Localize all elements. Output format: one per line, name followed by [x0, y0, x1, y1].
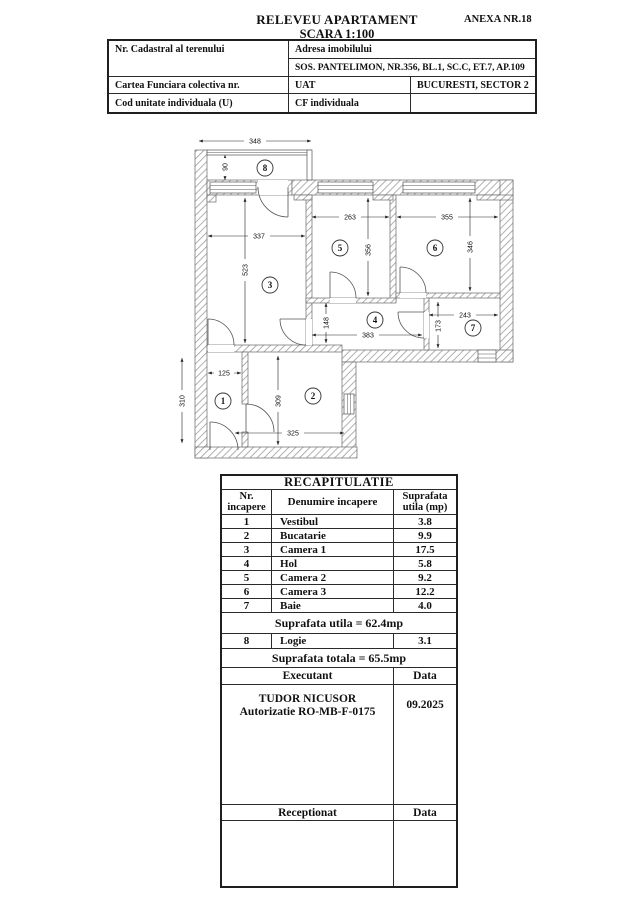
row-name: Camera 2: [272, 571, 394, 585]
room-number-3: 3: [268, 280, 273, 290]
row-nr: 6: [222, 585, 272, 599]
room-number-8: 8: [263, 163, 268, 173]
unit-code-label-cell: Cod unitate individuala (U): [109, 94, 289, 112]
dim-label: 310: [180, 395, 187, 407]
row-name: Baie: [272, 599, 394, 613]
col-header-area: Suprafata utila (mp): [394, 490, 456, 515]
dim-label: 337: [253, 234, 265, 241]
room-number-4: 4: [373, 315, 378, 325]
dim-label: 348: [249, 139, 261, 146]
row-name: Camera 1: [272, 543, 394, 557]
uat-label-cell: UAT: [289, 77, 411, 94]
row-area: 9.2: [394, 571, 456, 585]
row-nr: 1: [222, 515, 272, 529]
address-label-cell: Adresa imobilului: [289, 41, 535, 59]
dim-label: 346: [468, 241, 475, 253]
executant-data-header: Data: [394, 668, 456, 685]
row-name: Vestibul: [272, 515, 394, 529]
row-nr: 8: [222, 634, 272, 649]
executant-authorization: Autorizatie RO-MB-F-0175: [240, 706, 376, 719]
row-area: 17.5: [394, 543, 456, 557]
row-area: 4.0: [394, 599, 456, 613]
row-area: 12.2: [394, 585, 456, 599]
row-name: Bucatarie: [272, 529, 394, 543]
cadastral-label: Nr. Cadastral al terenului: [115, 41, 224, 58]
dim-label: 523: [243, 264, 250, 276]
row-area: 3.8: [394, 515, 456, 529]
empty-cell: [411, 94, 535, 112]
row-nr: 2: [222, 529, 272, 543]
recap-title: RECAPITULATIE: [222, 476, 456, 490]
dim-label: 243: [459, 313, 471, 320]
room-number-1: 1: [221, 396, 226, 406]
executant-date-cell: 09.2025: [394, 685, 456, 805]
dim-label: 355: [441, 215, 453, 222]
dim-label: 383: [362, 333, 374, 340]
dim-label: 263: [344, 215, 356, 222]
dim-label: 148: [324, 317, 331, 329]
row-nr: 5: [222, 571, 272, 585]
row-nr: 7: [222, 599, 272, 613]
cf-individual-cell: CF individuala: [289, 94, 411, 112]
executant-header: Executant: [222, 668, 394, 685]
receptionat-data-header: Data: [394, 805, 456, 821]
executant-date: 09.2025: [406, 685, 443, 711]
row-area: 9.9: [394, 529, 456, 543]
executant-cell: TUDOR NICUSOR Autorizatie RO-MB-F-0175: [222, 685, 394, 805]
uat-value-cell: BUCURESTI, SECTOR 2: [411, 77, 535, 94]
dim-label: 173: [436, 320, 443, 332]
annex-number: ANEXA NR.18: [464, 14, 532, 25]
row-name: Camera 3: [272, 585, 394, 599]
row-name: Hol: [272, 557, 394, 571]
executant-name: TUDOR NICUSOR: [240, 693, 376, 706]
total-row: Suprafata totala = 65.5mp: [222, 649, 456, 668]
room-number-2: 2: [311, 391, 316, 401]
document-page: RELEVEU APARTAMENT SCARA 1:100 ANEXA NR.…: [0, 0, 635, 900]
receptionat-header: Receptionat: [222, 805, 394, 821]
cadastral-info-table: Nr. Cadastral al terenului Adresa imobil…: [107, 39, 537, 114]
subtotal-row: Suprafata utila = 62.4mp: [222, 613, 456, 634]
row-area: 3.1: [394, 634, 456, 649]
dim-label: 325: [287, 431, 299, 438]
row-area: 5.8: [394, 557, 456, 571]
room-number-5: 5: [338, 243, 343, 253]
room-number-6: 6: [433, 243, 438, 253]
dim-label: 90: [223, 163, 230, 171]
row-nr: 3: [222, 543, 272, 557]
receptionat-date-cell: [394, 821, 456, 886]
address-value-cell: SOS. PANTELIMON, NR.356, BL.1, SC.C, ET.…: [289, 59, 535, 77]
dim-label: 309: [276, 395, 283, 407]
col-header-nr: Nr. incapere: [222, 490, 272, 515]
recap-table: RECAPITULATIE Nr. incapere Denumire inca…: [220, 474, 458, 888]
receptionat-cell: [222, 821, 394, 886]
cf-collective-label-cell: Cartea Funciara colectiva nr.: [109, 77, 289, 94]
col-header-name: Denumire incapere: [272, 490, 394, 515]
cadastral-label-cell: Nr. Cadastral al terenului: [109, 41, 289, 77]
dim-label: 125: [218, 371, 230, 378]
room-number-7: 7: [471, 323, 476, 333]
row-name: Logie: [272, 634, 394, 649]
row-nr: 4: [222, 557, 272, 571]
floor-plan-drawing: 348 90 337 523 263 356 355 346 243 173 1…: [160, 130, 635, 470]
dim-label: 356: [366, 244, 373, 256]
page-title: RELEVEU APARTAMENT: [177, 12, 497, 28]
